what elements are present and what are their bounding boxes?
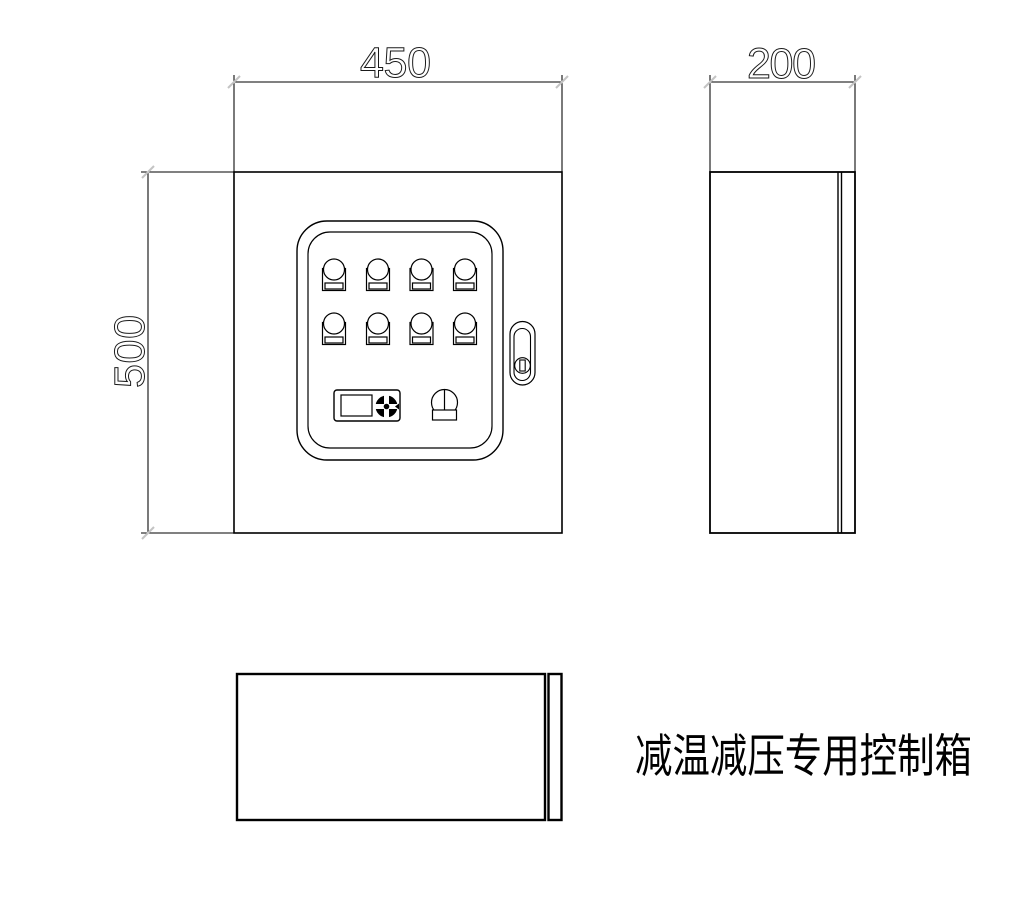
- drawing-title: 减温减压专用控制箱: [635, 731, 972, 782]
- dimension-front-width: 450: [228, 39, 568, 172]
- indicator-button: [410, 259, 433, 291]
- indicator-button: [323, 259, 346, 291]
- cad-sheet: 450 200 500: [0, 0, 1036, 900]
- door-handle: [510, 322, 535, 386]
- front-enclosure-outline: [234, 172, 562, 533]
- indicator-button: [367, 259, 390, 291]
- side-enclosure-outline: [710, 172, 855, 533]
- top-door-edge: [549, 674, 562, 820]
- dimension-front-height: 500: [106, 166, 234, 539]
- side-view: [710, 172, 855, 533]
- drawing-svg: 450 200 500: [0, 0, 1036, 900]
- dimension-side-depth: 200: [704, 40, 861, 172]
- dim-label-450: 450: [360, 39, 432, 87]
- indicator-button: [367, 313, 390, 345]
- indicator-button: [454, 313, 477, 345]
- top-view: [237, 674, 562, 820]
- front-view: [234, 172, 562, 533]
- indicator-button: [410, 313, 433, 345]
- dim-label-200: 200: [747, 40, 817, 88]
- indicator-button: [323, 313, 346, 345]
- top-enclosure-outline: [237, 674, 545, 820]
- dim-label-500: 500: [106, 314, 154, 388]
- indicator-button: [454, 259, 477, 291]
- rotary-switch: [432, 390, 458, 421]
